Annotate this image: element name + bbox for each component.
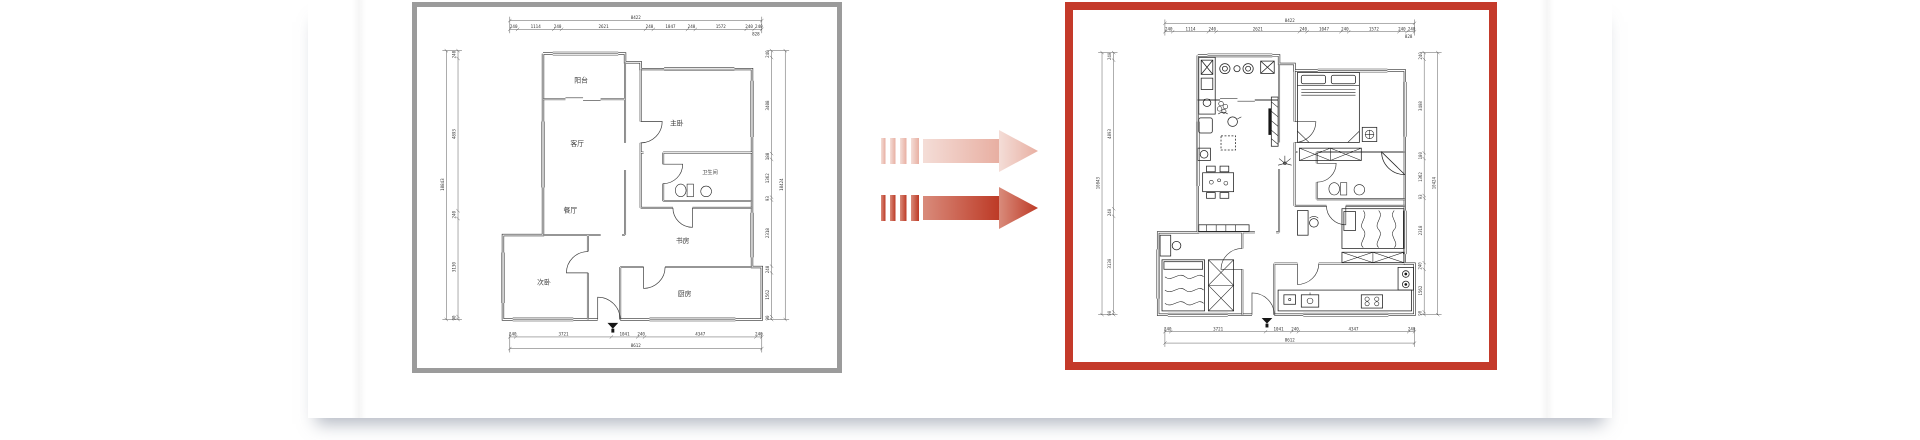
sideboard bbox=[1199, 225, 1249, 232]
room-label-bath: 卫生间 bbox=[702, 168, 718, 176]
shower bbox=[1382, 152, 1405, 175]
stove-burners bbox=[1220, 64, 1253, 74]
original-floorplan-drawing: 阳台 客厅 餐厅 主卧 卫生间 书房 次卧 厨房 bbox=[417, 7, 837, 368]
study-bed bbox=[1342, 209, 1404, 249]
room-labels: 阳台 客厅 餐厅 主卧 卫生间 书房 次卧 厨房 bbox=[537, 76, 718, 298]
plant bbox=[1217, 101, 1228, 114]
room-label-dining: 餐厅 bbox=[564, 206, 578, 215]
study-wardrobe bbox=[1342, 252, 1404, 262]
bedroom2-bed bbox=[1162, 260, 1205, 311]
room-label-master: 主卧 bbox=[670, 118, 684, 127]
furnished-floorplan-panel bbox=[1065, 2, 1497, 370]
hall-plant bbox=[1278, 156, 1292, 165]
flue-box bbox=[1261, 61, 1275, 73]
room-label-study: 书房 bbox=[676, 236, 690, 245]
dining-set bbox=[1203, 166, 1234, 198]
arrow-right-light-icon bbox=[881, 130, 1038, 172]
rug bbox=[1221, 136, 1236, 150]
washer bbox=[1198, 148, 1211, 160]
room-label-balcony: 阳台 bbox=[574, 76, 588, 85]
room-label-living: 客厅 bbox=[570, 139, 584, 148]
tv-unit bbox=[1268, 97, 1278, 146]
original-floorplan-panel: 阳台 客厅 餐厅 主卧 卫生间 书房 次卧 厨房 bbox=[412, 2, 842, 373]
coffee-table bbox=[1199, 117, 1242, 133]
furnished-floorplan-drawing bbox=[1073, 10, 1489, 362]
card-right-edge-shade bbox=[1540, 0, 1554, 418]
master-wardrobe bbox=[1299, 148, 1361, 160]
arrow-right-dark-icon bbox=[881, 187, 1038, 229]
kitchen-counter bbox=[1278, 267, 1413, 311]
nightstand bbox=[1362, 127, 1377, 141]
master-bed bbox=[1297, 72, 1359, 142]
page: 8422 240 1114 240 2621 240 1047 240 1572… bbox=[0, 0, 1920, 440]
transform-arrows bbox=[881, 128, 1038, 229]
bedroom2-desk bbox=[1160, 235, 1181, 256]
bar-counter bbox=[1199, 57, 1215, 114]
room-label-kitchen: 厨房 bbox=[678, 289, 692, 298]
card-left-edge-shade bbox=[352, 0, 366, 418]
room-label-second-bedroom: 次卧 bbox=[537, 278, 551, 287]
study-desk bbox=[1297, 211, 1318, 236]
